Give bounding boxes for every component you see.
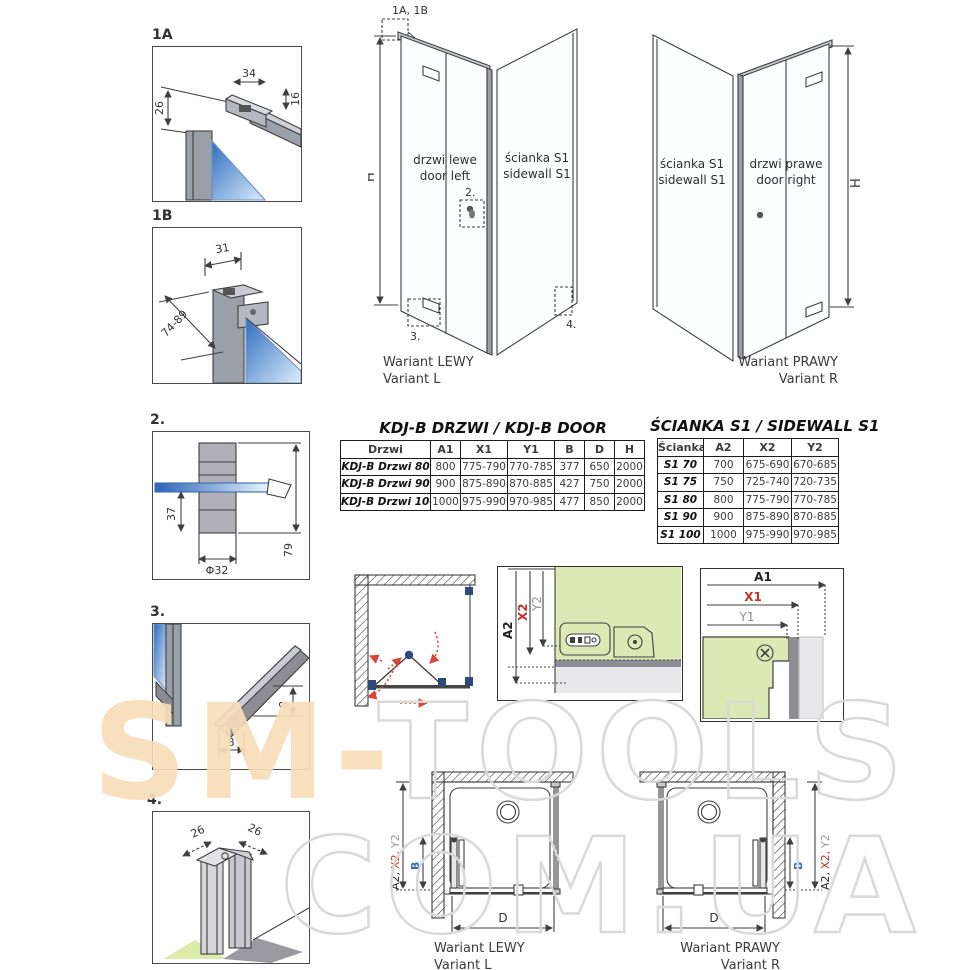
- detail-1a-label: 1A: [152, 27, 173, 43]
- plan-right-caption-en: Variant R: [630, 957, 780, 970]
- iso-right-wall-label-pl: ścianka S1: [660, 157, 724, 171]
- detail-1b-drawing: 31 74-89: [153, 228, 301, 383]
- cell: 725-740: [744, 474, 792, 492]
- cell: 800: [431, 458, 461, 476]
- section-dim-x2: X2: [516, 603, 530, 621]
- plan-left-drawing: A2,X2,Y2 B D: [388, 760, 636, 938]
- section-dim-y1: Y1: [739, 610, 755, 624]
- door-table: Drzwi A1 X1 Y1 B D H KDJ-B Drzwi 80 800 …: [340, 440, 645, 511]
- cell: 875-890: [744, 509, 792, 527]
- detail-1a-box: 34 16 26: [152, 46, 302, 202]
- plan-right-drawing: A2,X2,Y2 B D: [630, 760, 878, 938]
- detail-3-box: 8 8: [152, 623, 310, 770]
- col-y1: Y1: [508, 441, 555, 459]
- cell: 2000: [615, 493, 645, 511]
- iso-left-caption: Wariant LEWY Variant L: [383, 354, 474, 388]
- dim-37: 37: [165, 507, 178, 521]
- iso-right-door-label-en: door right: [756, 173, 816, 187]
- cell: 750: [704, 474, 744, 492]
- cell: 775-790: [461, 458, 508, 476]
- dim-dia32: Φ32: [206, 564, 229, 577]
- iso-left-caption-en: Variant L: [383, 371, 474, 388]
- iso-right-height-dim: H: [849, 178, 862, 188]
- section-dim-y2: Y2: [530, 596, 544, 612]
- cell: 427: [555, 476, 585, 494]
- door-table-panel: KDJ-B DRZWI / KDJ-B DOOR Drzwi A1 X1 Y1 …: [340, 419, 646, 511]
- table-row: KDJ-B Drzwi 90 900 875-890 870-885 427 7…: [341, 476, 645, 494]
- table-row: S1 80 800 775-790 770-785: [658, 491, 839, 509]
- plan-left-axy-dim: A2,X2,Y2: [389, 834, 402, 890]
- dim-8-v: 8: [277, 701, 290, 708]
- cell: 875-890: [461, 476, 508, 494]
- cell: S1 90: [658, 509, 704, 527]
- iso-left-door-label-pl: drzwi lewe: [413, 153, 477, 167]
- col-d: D: [585, 441, 615, 459]
- cell: 700: [704, 456, 744, 474]
- plan-right-axy-dim: A2,X2,Y2: [819, 834, 832, 890]
- col-drzwi: Drzwi: [341, 441, 431, 459]
- iso-left-profiles-callout: 1A, 1B: [392, 4, 428, 17]
- iso-left-height-dim: H: [368, 172, 378, 182]
- section-dim-a1: A1: [754, 570, 772, 584]
- fold-plan-drawing: [343, 566, 481, 718]
- cell: 2000: [615, 458, 645, 476]
- detail-3-drawing: 8 8: [153, 624, 309, 769]
- dim-79: 79: [282, 543, 295, 557]
- col-y2: Y2: [792, 439, 839, 457]
- table-row: KDJ-B Drzwi 100 1000 975-990 970-985 477…: [341, 493, 645, 511]
- iso-right-view: H ścianka S1 sidewall S1 drzwi prawe doo…: [622, 8, 862, 370]
- iso-left-drawing: 1A, 1B H drzwi lewe door left ścianka S1…: [368, 2, 603, 360]
- table-row: S1 90 900 875-890 870-885: [658, 509, 839, 527]
- detail-3-label: 3.: [150, 604, 165, 620]
- cell: 770-785: [792, 491, 839, 509]
- plan-left-b-dim: B: [409, 862, 422, 870]
- sidewall-section-drawing: A2 X2 Y2: [498, 567, 682, 698]
- cell: S1 75: [658, 474, 704, 492]
- cell: 870-885: [792, 509, 839, 527]
- fold-plan-sketch: [343, 566, 481, 722]
- iso-right-door-label-pl: drzwi prawe: [750, 157, 823, 171]
- sidewall-table-header-row: Ścianka A2 X2 Y2: [658, 439, 839, 457]
- iso-left-view: 1A, 1B H drzwi lewe door left ścianka S1…: [368, 2, 603, 364]
- section-dim-x1: X1: [744, 590, 762, 604]
- col-h: H: [615, 441, 645, 459]
- detail-4-box: 26 26: [152, 811, 310, 964]
- detail-1b-label: 1B: [152, 208, 172, 224]
- cell: S1 80: [658, 491, 704, 509]
- plan-right-caption-pl: Wariant PRAWY: [630, 940, 780, 957]
- detail-1b-box: 31 74-89: [152, 227, 302, 384]
- cell: 970-985: [508, 493, 555, 511]
- iso-right-caption-pl: Wariant PRAWY: [688, 354, 838, 371]
- iso-right-wall-label-en: sidewall S1: [658, 173, 726, 187]
- plan-right-view: A2,X2,Y2 B D: [630, 760, 878, 942]
- plan-left-d-dim: D: [498, 911, 507, 925]
- cell: 2000: [615, 476, 645, 494]
- col-a1: A1: [431, 441, 461, 459]
- cell: 870-885: [508, 476, 555, 494]
- table-row: S1 75 750 725-740 720-735: [658, 474, 839, 492]
- iso-left-callout-4: 4.: [566, 318, 577, 331]
- cell: S1 70: [658, 456, 704, 474]
- col-b: B: [555, 441, 585, 459]
- plan-right-caption: Wariant PRAWY Variant R: [630, 940, 780, 970]
- dim-34: 34: [242, 67, 256, 80]
- door-swing-arrows: [368, 632, 438, 703]
- cell: 720-735: [792, 474, 839, 492]
- iso-left-callout-2: 2.: [465, 186, 476, 199]
- iso-right-caption: Wariant PRAWY Variant R: [688, 354, 838, 388]
- door-section: A1 X1 Y1: [700, 568, 844, 722]
- cell: KDJ-B Drzwi 100: [341, 493, 431, 511]
- cell: KDJ-B Drzwi 80: [341, 458, 431, 476]
- cell: 1000: [431, 493, 461, 511]
- detail-2-box: 37 Φ32 79: [152, 431, 310, 580]
- cell: 750: [585, 476, 615, 494]
- cell: 970-985: [792, 526, 839, 544]
- iso-left-callout-3: 3.: [410, 330, 421, 343]
- section-dim-a2: A2: [501, 621, 515, 639]
- col-a2: A2: [704, 439, 744, 457]
- cell: 770-785: [508, 458, 555, 476]
- dim-26-left: 26: [189, 823, 207, 841]
- cell: 650: [585, 458, 615, 476]
- plan-left-caption-pl: Wariant LEWY: [434, 940, 525, 957]
- iso-right-caption-en: Variant R: [688, 371, 838, 388]
- cell: 377: [555, 458, 585, 476]
- sidewall-section: A2 X2 Y2: [497, 566, 683, 701]
- cell: 975-990: [744, 526, 792, 544]
- iso-left-caption-pl: Wariant LEWY: [383, 354, 474, 371]
- col-scianka: Ścianka: [658, 439, 704, 457]
- col-x2: X2: [744, 439, 792, 457]
- cell: 477: [555, 493, 585, 511]
- detail-1a-drawing: 34 16 26: [153, 47, 301, 201]
- col-x1: X1: [461, 441, 508, 459]
- sidewall-table-panel: ŚCIANKA S1 / SIDEWALL S1 Ścianka A2 X2 Y…: [650, 417, 940, 544]
- plan-left-caption: Wariant LEWY Variant L: [434, 940, 525, 970]
- dim-8-h: 8: [228, 736, 235, 749]
- sidewall-table: Ścianka A2 X2 Y2 S1 70 700 675-690 670-6…: [657, 438, 839, 544]
- iso-left-wall-label-en: sidewall S1: [503, 167, 571, 181]
- plan-right-d-dim: D: [709, 911, 718, 925]
- dim-16: 16: [289, 92, 301, 106]
- door-section-drawing: A1 X1 Y1: [701, 569, 843, 719]
- cell: 775-790: [744, 491, 792, 509]
- cell: 900: [431, 476, 461, 494]
- detail-2-drawing: 37 Φ32 79: [153, 432, 309, 579]
- cell: 1000: [704, 526, 744, 544]
- iso-left-wall-label-pl: ścianka S1: [505, 151, 569, 165]
- table-row: S1 100 1000 975-990 970-985: [658, 526, 839, 544]
- cell: 800: [704, 491, 744, 509]
- cell: 900: [704, 509, 744, 527]
- table-row: KDJ-B Drzwi 80 800 775-790 770-785 377 6…: [341, 458, 645, 476]
- table-row: S1 70 700 675-690 670-685: [658, 456, 839, 474]
- plan-right-b-dim: B: [792, 862, 805, 870]
- cell: KDJ-B Drzwi 90: [341, 476, 431, 494]
- dim-74-89: 74-89: [159, 308, 191, 340]
- cell: S1 100: [658, 526, 704, 544]
- iso-left-door-label-en: door left: [420, 169, 471, 183]
- cell: 975-990: [461, 493, 508, 511]
- door-table-title: KDJ-B DRZWI / KDJ-B DOOR: [340, 419, 646, 437]
- plan-left-caption-en: Variant L: [434, 957, 525, 970]
- cell: 670-685: [792, 456, 839, 474]
- dim-31: 31: [214, 241, 230, 256]
- cell: 675-690: [744, 456, 792, 474]
- detail-2-label: 2.: [150, 412, 165, 428]
- door-table-header-row: Drzwi A1 X1 Y1 B D H: [341, 441, 645, 459]
- sidewall-table-title: ŚCIANKA S1 / SIDEWALL S1: [650, 417, 940, 435]
- plan-left-view: A2,X2,Y2 B D: [388, 760, 636, 942]
- cell: 850: [585, 493, 615, 511]
- detail-4-drawing: 26 26: [153, 812, 309, 963]
- detail-4-label: 4.: [147, 792, 162, 808]
- iso-right-drawing: H ścianka S1 sidewall S1 drzwi prawe doo…: [622, 8, 862, 366]
- dim-26-right: 26: [246, 821, 264, 839]
- dim-26: 26: [153, 101, 166, 115]
- technical-drawing-sheet: 1A 34 16 26 1B: [0, 0, 970, 970]
